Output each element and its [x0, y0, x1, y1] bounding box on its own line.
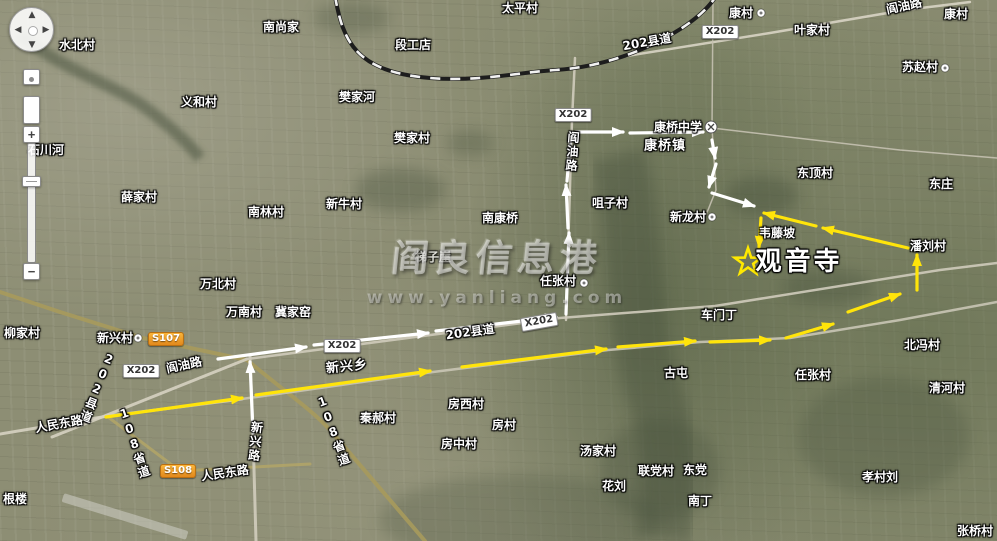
school-icon — [705, 121, 717, 133]
zoom-slider-track[interactable] — [27, 143, 36, 263]
pan-left-button[interactable]: ◀ — [12, 24, 24, 36]
vegetation-layer — [20, 2, 969, 541]
zoom-slider-handle[interactable] — [22, 176, 41, 187]
pan-right-button[interactable]: ▶ — [40, 24, 52, 36]
zoom-in-button[interactable]: + — [23, 126, 40, 143]
route-yellow-arrows — [106, 213, 917, 417]
zoom-out-button[interactable]: − — [23, 263, 40, 280]
pegman-streetview-button[interactable] — [23, 96, 40, 124]
reset-view-button[interactable] — [23, 69, 40, 85]
pan-control[interactable]: ▲ ▼ ◀ ▶ — [9, 7, 54, 52]
pan-center-button[interactable] — [28, 26, 38, 36]
map-overlay — [0, 0, 997, 541]
destination-star — [735, 248, 762, 273]
railway-line — [335, 0, 716, 79]
pan-up-button[interactable]: ▲ — [26, 9, 38, 21]
satellite-map[interactable]: 水北村南尚家太平村段工店康村阎油路康村叶家村X202202县道苏赵村义和村樊家河… — [0, 0, 997, 541]
pan-down-button[interactable]: ▼ — [26, 39, 38, 51]
